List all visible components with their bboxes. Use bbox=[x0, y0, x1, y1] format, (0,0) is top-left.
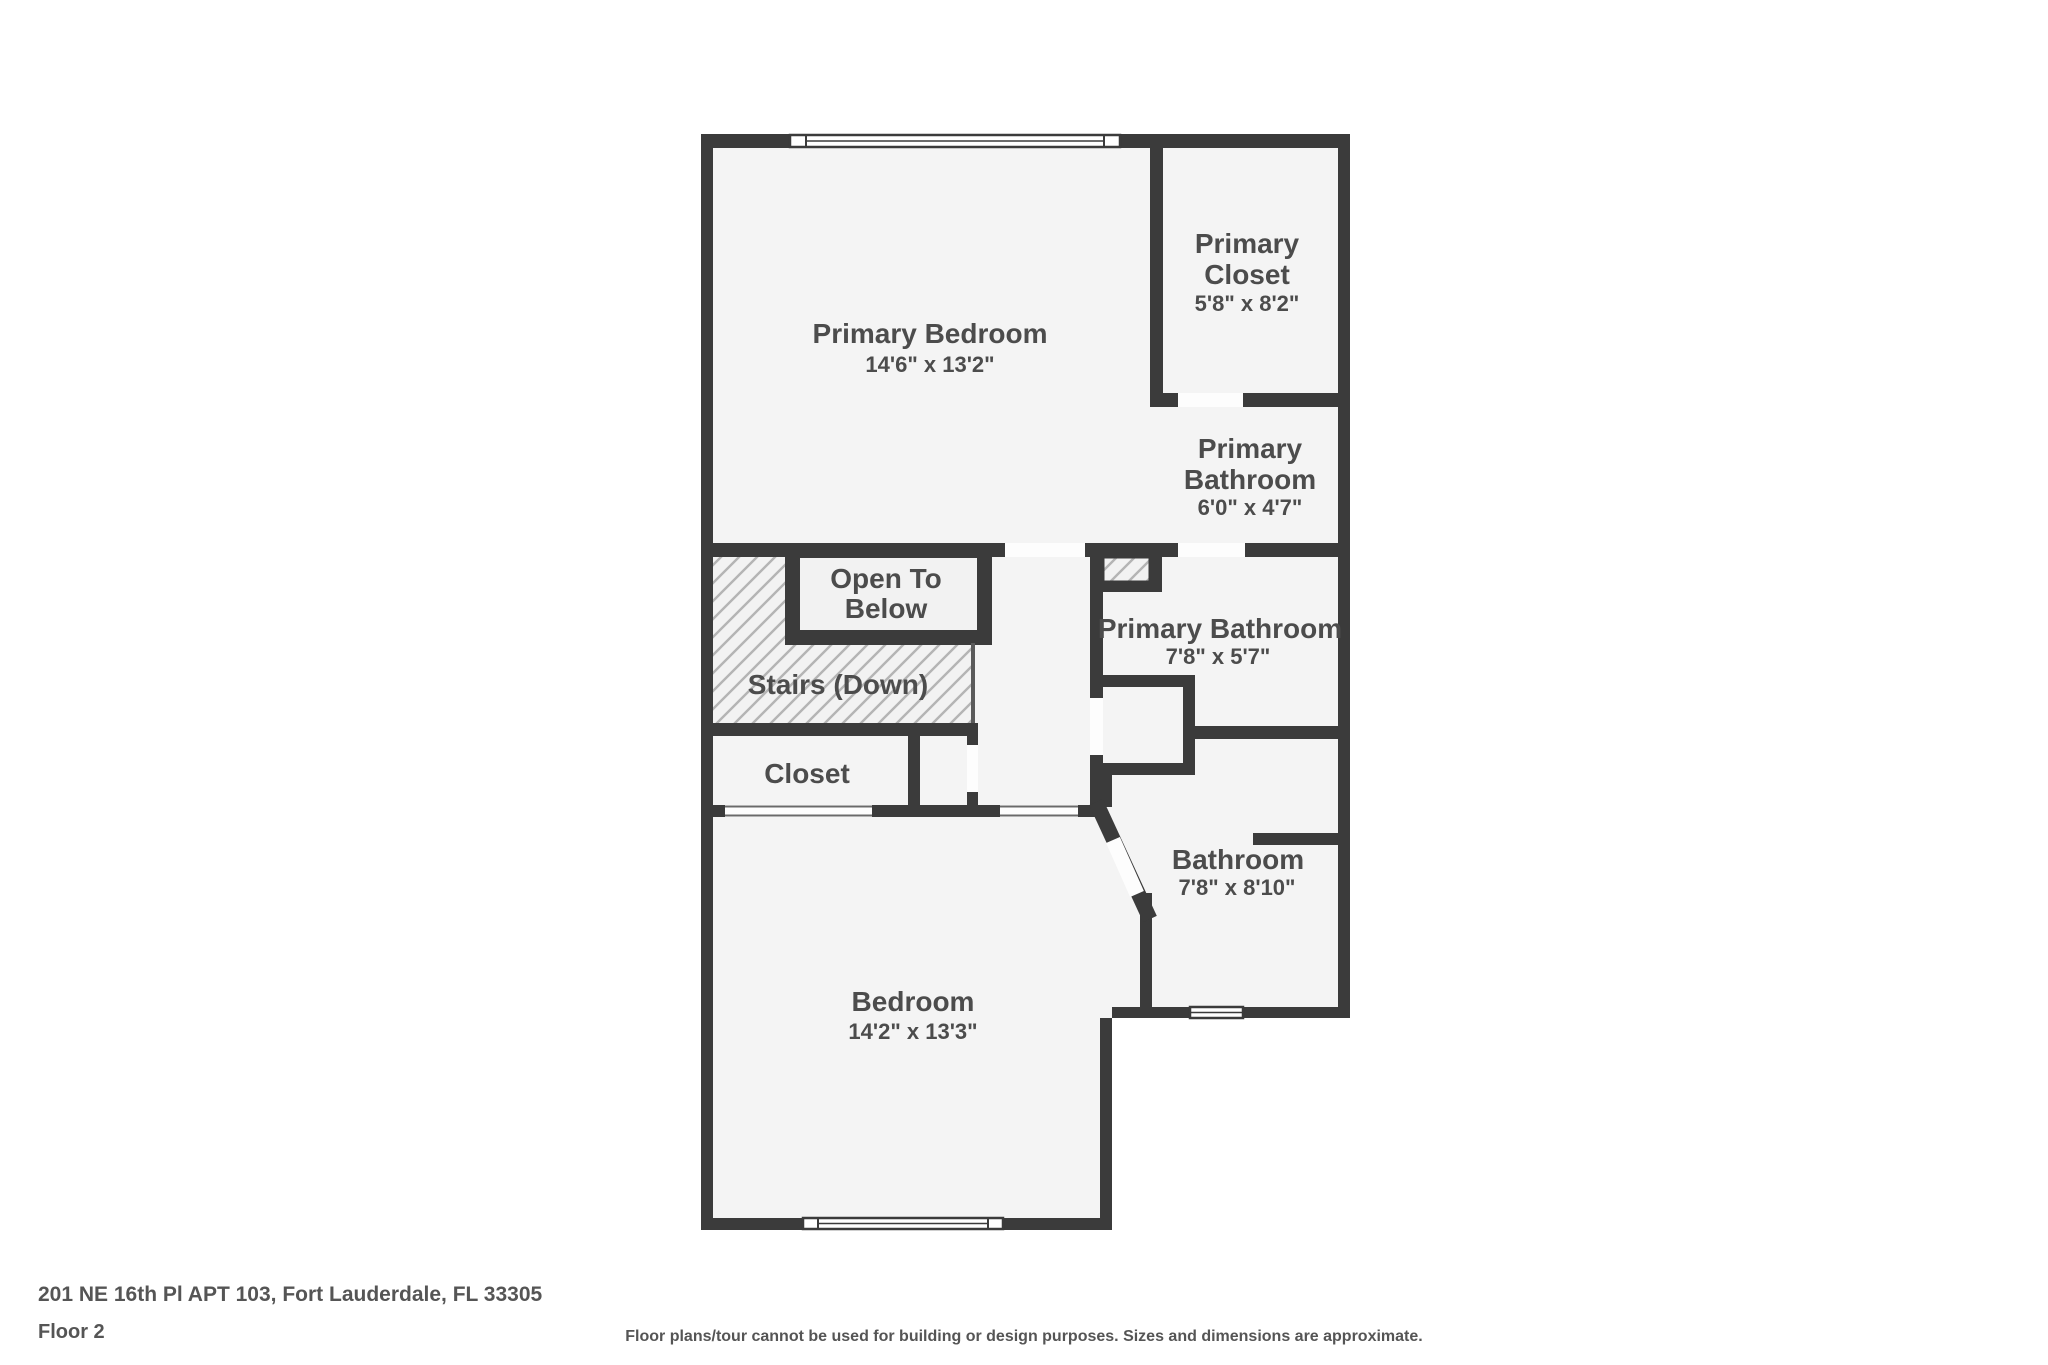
wall-segment bbox=[1090, 763, 1195, 775]
bedroom-door-opening bbox=[1000, 805, 1078, 817]
stair-edge-line bbox=[971, 643, 975, 723]
open-to-below-label: Open To bbox=[830, 563, 941, 594]
floor-plan-page: Primary Bedroom 14'6" x 13'2" Primary Cl… bbox=[0, 0, 2048, 1365]
wall-opening bbox=[1005, 543, 1085, 557]
primary-bathroom-label: Primary Bathroom bbox=[1098, 613, 1342, 644]
primary-closet-label: Closet bbox=[1204, 259, 1290, 290]
primary-closet-dims: 5'8" x 8'2" bbox=[1195, 291, 1300, 316]
chase-hatch-box bbox=[1103, 557, 1150, 582]
wall-segment bbox=[1103, 582, 1162, 592]
wall-segment bbox=[967, 792, 978, 805]
primary-bathroom-upper-dims: 6'0" x 4'7" bbox=[1198, 495, 1303, 520]
wall-segment bbox=[1103, 675, 1193, 687]
primary-bedroom-label: Primary Bedroom bbox=[813, 318, 1048, 349]
primary-bathroom-upper-label: Primary bbox=[1198, 433, 1303, 464]
primary-bedroom-dims: 14'6" x 13'2" bbox=[865, 352, 994, 377]
property-address: 201 NE 16th Pl APT 103, Fort Lauderdale,… bbox=[38, 1283, 542, 1307]
door-opening bbox=[967, 745, 978, 792]
wall-segment bbox=[967, 736, 978, 745]
wall-segment bbox=[1193, 726, 1350, 739]
wall-segment bbox=[1100, 1018, 1112, 1230]
wall-segment bbox=[1183, 675, 1195, 775]
window bbox=[803, 1218, 1003, 1229]
wall-segment bbox=[713, 723, 978, 736]
window bbox=[790, 135, 1120, 147]
stairs-label: Stairs (Down) bbox=[748, 669, 928, 700]
primary-bathroom-upper-label: Bathroom bbox=[1184, 464, 1316, 495]
closet-slider-opening bbox=[725, 805, 872, 817]
primary-closet-label: Primary bbox=[1195, 228, 1300, 259]
wall-segment bbox=[701, 134, 713, 1230]
bedroom-label: Bedroom bbox=[852, 986, 975, 1017]
bedroom-dims: 14'2" x 13'3" bbox=[848, 1019, 977, 1044]
wall-segment bbox=[701, 805, 725, 817]
door-opening bbox=[1178, 393, 1243, 407]
floor-plan-canvas: Primary Bedroom 14'6" x 13'2" Primary Cl… bbox=[0, 0, 2048, 1365]
wall-segment bbox=[872, 805, 1000, 817]
closet-label: Closet bbox=[764, 758, 850, 789]
wall-segment bbox=[1150, 148, 1163, 407]
window bbox=[1190, 1007, 1243, 1018]
bathroom-label: Bathroom bbox=[1172, 844, 1304, 875]
bathroom-dims: 7'8" x 8'10" bbox=[1179, 875, 1296, 900]
disclaimer-text: Floor plans/tour cannot be used for buil… bbox=[0, 1328, 2048, 1346]
primary-bathroom-dims: 7'8" x 5'7" bbox=[1166, 644, 1271, 669]
door-opening bbox=[1090, 698, 1103, 755]
wall-segment bbox=[908, 736, 920, 805]
open-to-below-label: Below bbox=[845, 593, 928, 624]
door-opening bbox=[1178, 543, 1245, 557]
wall-segment bbox=[1338, 134, 1350, 1018]
